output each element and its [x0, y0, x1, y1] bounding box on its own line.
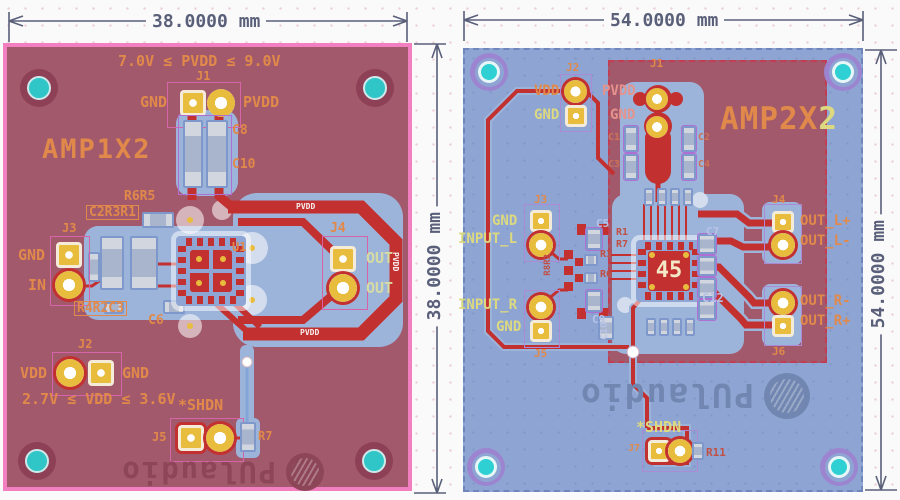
ref-c2[interactable]: C2 [698, 133, 710, 143]
ref-r3[interactable]: R3 [600, 250, 612, 260]
capacitor-c2[interactable] [682, 126, 696, 152]
pui-audio-swoosh-icon [764, 373, 810, 419]
capacitor[interactable] [657, 188, 667, 206]
ic-amp-chip[interactable]: 45 [636, 240, 702, 302]
pad-j3-gnd[interactable] [56, 242, 82, 268]
pad-j4-out2[interactable] [329, 274, 357, 302]
pad-j4-outlm[interactable] [771, 233, 795, 257]
logo-text: PUlaudio [120, 455, 276, 489]
ref-r11[interactable]: R11 [706, 447, 726, 458]
pad-j1-gnd[interactable] [180, 90, 206, 116]
resistor-r3[interactable] [584, 254, 598, 266]
mounting-hole[interactable] [470, 53, 508, 91]
capacitor-c1[interactable] [624, 126, 638, 152]
ref-j5-right[interactable]: J5 [534, 348, 547, 359]
silk-shdn-left[interactable]: *SHDN [178, 398, 223, 413]
silk-j3-gnd[interactable]: GND [18, 248, 45, 263]
capacitor[interactable] [685, 318, 695, 336]
dimension-left-height[interactable]: 38.0000 mm [426, 206, 444, 326]
ref-c5[interactable]: C5 [596, 218, 609, 229]
pad-j5-a[interactable] [178, 425, 204, 451]
ref-c6[interactable]: C6 [148, 314, 164, 327]
ref-j4-right[interactable]: J4 [772, 194, 785, 205]
pad-j1-pvdd[interactable] [207, 89, 235, 117]
ref-r4r2c3[interactable]: R4R2C3 [74, 301, 127, 316]
pad-j7-a[interactable] [648, 440, 670, 462]
silk-j1-pvdd[interactable]: PVDD [243, 95, 279, 110]
capacitor-c10[interactable] [206, 120, 228, 188]
silk-j3-in[interactable]: IN [28, 278, 46, 293]
ref-r7-right[interactable]: R7 [616, 240, 628, 250]
silk-pvdd-right[interactable]: PVDD [602, 84, 636, 98]
capacitor-c8[interactable] [183, 120, 203, 188]
copper-flood-j1 [669, 92, 683, 106]
capacitor-c4[interactable] [682, 154, 696, 180]
capacitor[interactable] [100, 236, 124, 290]
ref-c1[interactable]: C1 [608, 133, 620, 143]
capacitor[interactable] [672, 318, 682, 336]
silk-out-lm[interactable]: OUT_L- [800, 234, 851, 248]
chip-marking: 45 [656, 260, 683, 282]
silk-out-rm[interactable]: OUT_R- [800, 294, 851, 308]
ref-j4[interactable]: J4 [330, 222, 346, 235]
pad-j4-out1[interactable] [330, 246, 356, 272]
logo-text: PUlaudio [579, 377, 754, 416]
ref-j6-right[interactable]: J6 [772, 346, 785, 357]
mounting-hole[interactable] [467, 448, 505, 486]
ref-c2r3r1[interactable]: C2R3R1 [86, 205, 139, 220]
pad-j7-b[interactable] [668, 439, 692, 463]
ref-c3[interactable]: C3 [608, 160, 620, 170]
ref-r7[interactable]: R7 [258, 430, 272, 442]
dimension-left-width[interactable]: 38.0000 mm [146, 13, 266, 31]
silk-gnd-j5-right[interactable]: GND [496, 320, 521, 334]
capacitor-c9[interactable] [586, 290, 602, 312]
pad-j2-vdd-right[interactable] [564, 80, 587, 103]
mounting-hole[interactable] [355, 442, 393, 480]
silk-gnd-j2-right[interactable]: GND [534, 108, 559, 122]
ref-c7[interactable]: C7 [706, 226, 719, 237]
ref-c10[interactable]: C10 [232, 158, 255, 171]
ref-j3[interactable]: J3 [62, 222, 76, 234]
silk-j2-vdd[interactable]: VDD [20, 366, 47, 381]
pad-j2-gnd[interactable] [88, 360, 114, 386]
pad-j2-gnd-right[interactable] [565, 105, 587, 127]
silk-vdd-right[interactable]: VDD [534, 84, 559, 98]
pad-j5-b[interactable] [206, 424, 234, 452]
ref-j3-right[interactable]: J3 [534, 194, 547, 205]
ref-j5[interactable]: J5 [152, 431, 166, 443]
mounting-hole[interactable] [18, 442, 56, 480]
trace-label-pvdd-top[interactable]: PVDD [296, 203, 315, 211]
silk-out-lp[interactable]: OUT_L+ [800, 214, 851, 228]
silk-gnd-j3-right[interactable]: GND [492, 214, 517, 228]
resistor-r7[interactable] [240, 422, 256, 452]
silk-input-l[interactable]: INPUT_L [458, 232, 517, 246]
capacitor[interactable] [646, 318, 656, 336]
ref-u1[interactable]: U1 [232, 241, 246, 253]
ref-r1[interactable]: R1 [616, 228, 628, 238]
mounting-hole[interactable] [824, 53, 862, 91]
pad-j1-pvdd-right[interactable] [646, 88, 668, 110]
capacitor[interactable] [698, 256, 716, 276]
ref-c8[interactable]: C8 [232, 124, 248, 137]
silk-out-rp[interactable]: OUT_R+ [800, 314, 851, 328]
pad-j4-outlp[interactable] [772, 211, 794, 233]
ref-j2[interactable]: J2 [78, 338, 92, 350]
silk-out-top[interactable]: OUT [366, 251, 393, 266]
resistor-r11[interactable] [692, 442, 704, 460]
silk-gnd-j1-right[interactable]: GND [610, 108, 635, 122]
pcb-editor-canvas: 7.0V ≤ PVDD ≤ 9.0V J1 GND PVDD C8 C10 AM… [0, 0, 900, 500]
capacitor[interactable] [683, 188, 693, 206]
capacitor[interactable] [670, 188, 680, 206]
capacitor-c5[interactable] [586, 228, 602, 250]
pui-audio-logo-left[interactable]: PUlaudio [88, 452, 324, 492]
trace-label-pvdd-right[interactable]: PVDD [391, 252, 399, 271]
pui-audio-logo-right[interactable]: PUlaudio [520, 372, 810, 420]
pad-j5-gnd-right[interactable] [530, 320, 552, 342]
title-main: AMP2X [720, 101, 818, 137]
silk-out-bottom[interactable]: OUT [366, 281, 393, 296]
resistor[interactable] [142, 212, 174, 228]
title-tail: 2 [818, 101, 838, 137]
ref-j2-right[interactable]: J2 [566, 62, 579, 73]
board-title-right[interactable]: AMP2X2 [720, 101, 838, 137]
ref-j1[interactable]: J1 [196, 70, 210, 82]
mounting-hole[interactable] [20, 69, 58, 107]
capacitor[interactable] [130, 236, 158, 290]
ref-c12[interactable]: C12 [702, 292, 724, 304]
ref-r6r5[interactable]: R6R5 [124, 190, 155, 203]
pui-audio-swoosh-icon [286, 453, 324, 491]
silk-shdn-right[interactable]: *SHDN [636, 420, 681, 435]
via[interactable] [242, 357, 252, 367]
capacitor-c3[interactable] [624, 154, 638, 180]
ref-c4[interactable]: C4 [698, 160, 710, 170]
mounting-hole[interactable] [820, 448, 858, 486]
silk-vdd-range[interactable]: 2.7V ≤ VDD ≤ 3.6V [22, 392, 176, 407]
mounting-hole[interactable] [356, 69, 394, 107]
ref-r6[interactable]: R6 [600, 270, 612, 280]
pad-j5-inputr[interactable] [529, 295, 553, 319]
ref-j1-right[interactable]: J1 [650, 58, 663, 69]
pad-j6-outrm[interactable] [771, 291, 795, 315]
pad-j3-in[interactable] [55, 271, 83, 299]
trace-label-pvdd-bottom[interactable]: PVDD [300, 329, 319, 337]
ref-j7-right[interactable]: J7 [628, 444, 640, 454]
resistor-r6[interactable] [584, 272, 598, 284]
ref-r8r2[interactable]: R8R2 [544, 254, 553, 276]
ref-c10-right[interactable]: C10 [600, 322, 610, 340]
capacitor[interactable] [659, 318, 669, 336]
dimension-right-width[interactable]: 54.0000 mm [604, 12, 724, 30]
pad-j6-outrp[interactable] [772, 315, 794, 337]
capacitor[interactable] [644, 188, 654, 206]
silk-j1-gnd[interactable]: GND [140, 95, 167, 110]
dimension-right-height[interactable]: 54.0000 mm [870, 214, 888, 334]
pad-j2-vdd[interactable] [56, 359, 84, 387]
via[interactable] [627, 346, 639, 358]
pad-j1-gnd-right[interactable] [646, 116, 668, 138]
silk-input-r[interactable]: INPUT_R [458, 298, 517, 312]
silk-pvdd-range[interactable]: 7.0V ≤ PVDD ≤ 9.0V [118, 54, 281, 69]
silk-j2-gnd[interactable]: GND [122, 366, 149, 381]
board-title-left[interactable]: AMP1X2 [42, 134, 152, 165]
pad-j3-gnd-right[interactable] [530, 210, 552, 232]
